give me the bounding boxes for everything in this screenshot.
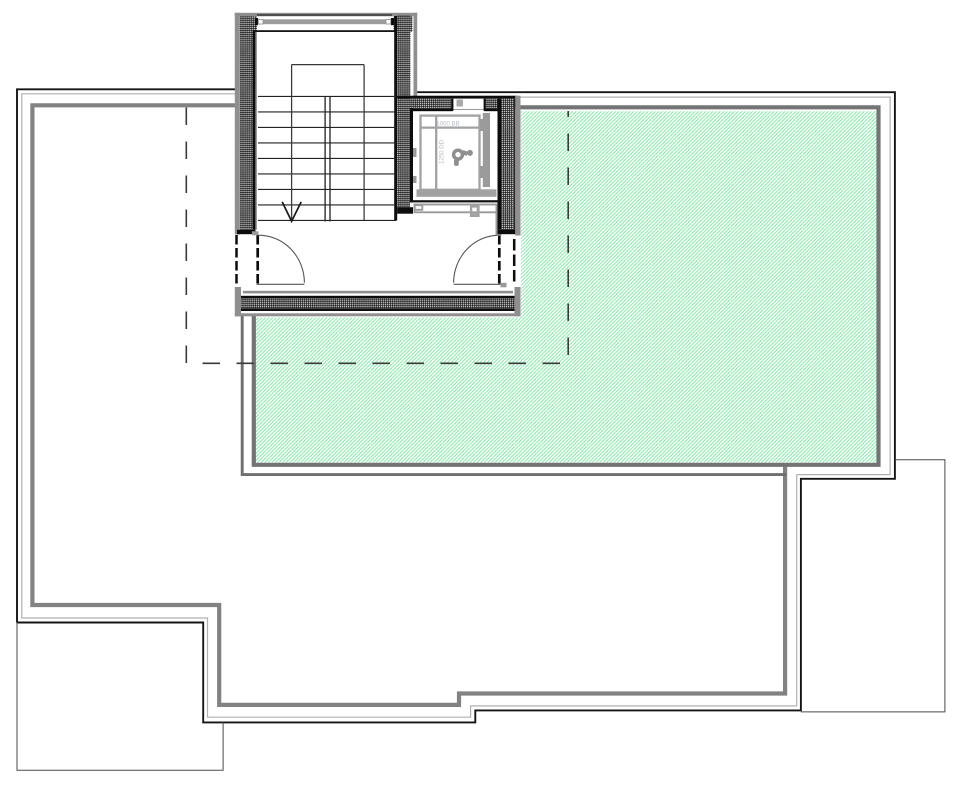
svg-text:1000 BB: 1000 BB [436,120,459,127]
svg-text:1250 DD: 1250 DD [439,139,446,164]
